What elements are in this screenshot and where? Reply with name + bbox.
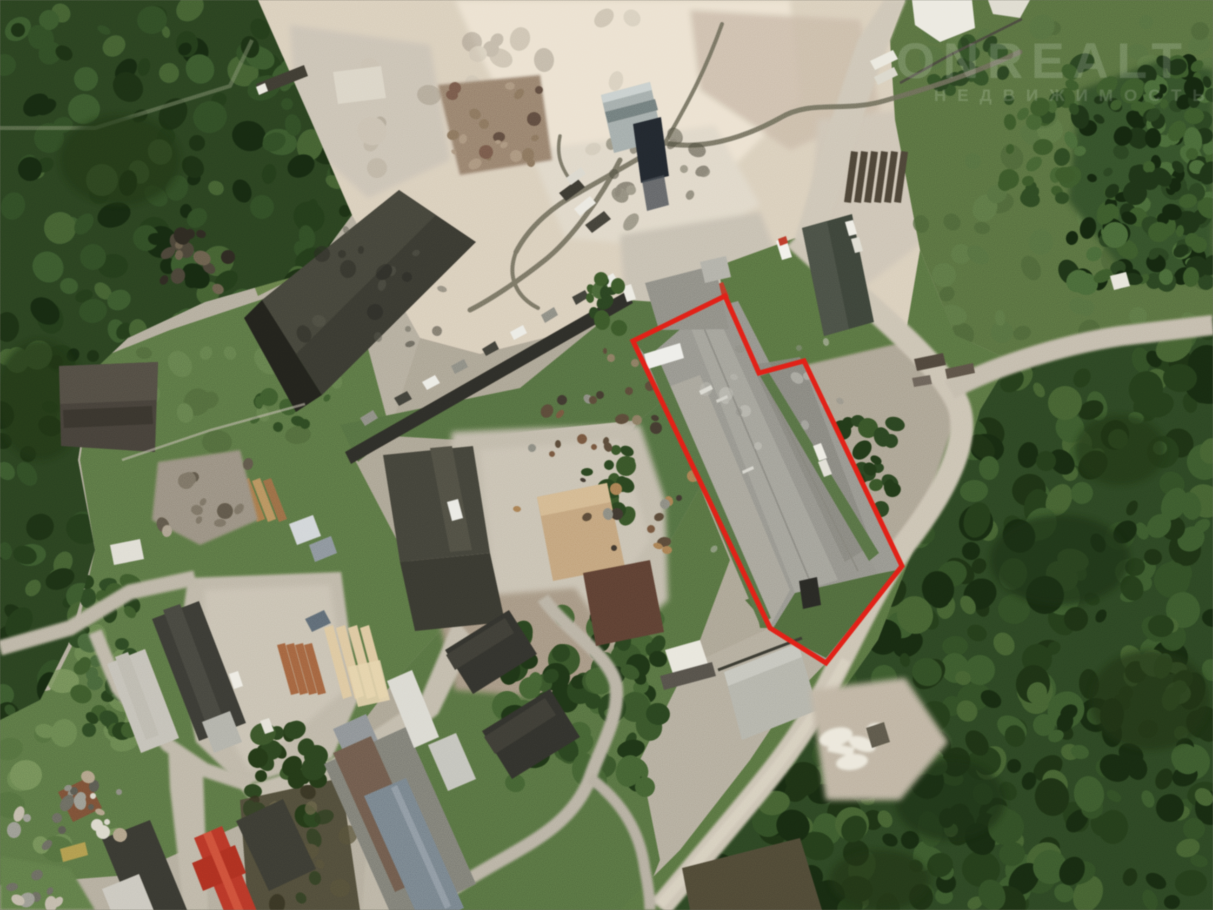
- svg-text:ONREALT: ONREALT: [896, 33, 1190, 89]
- svg-text:НЕДВИЖИМОСТЬ: НЕДВИЖИМОСТЬ: [934, 86, 1213, 105]
